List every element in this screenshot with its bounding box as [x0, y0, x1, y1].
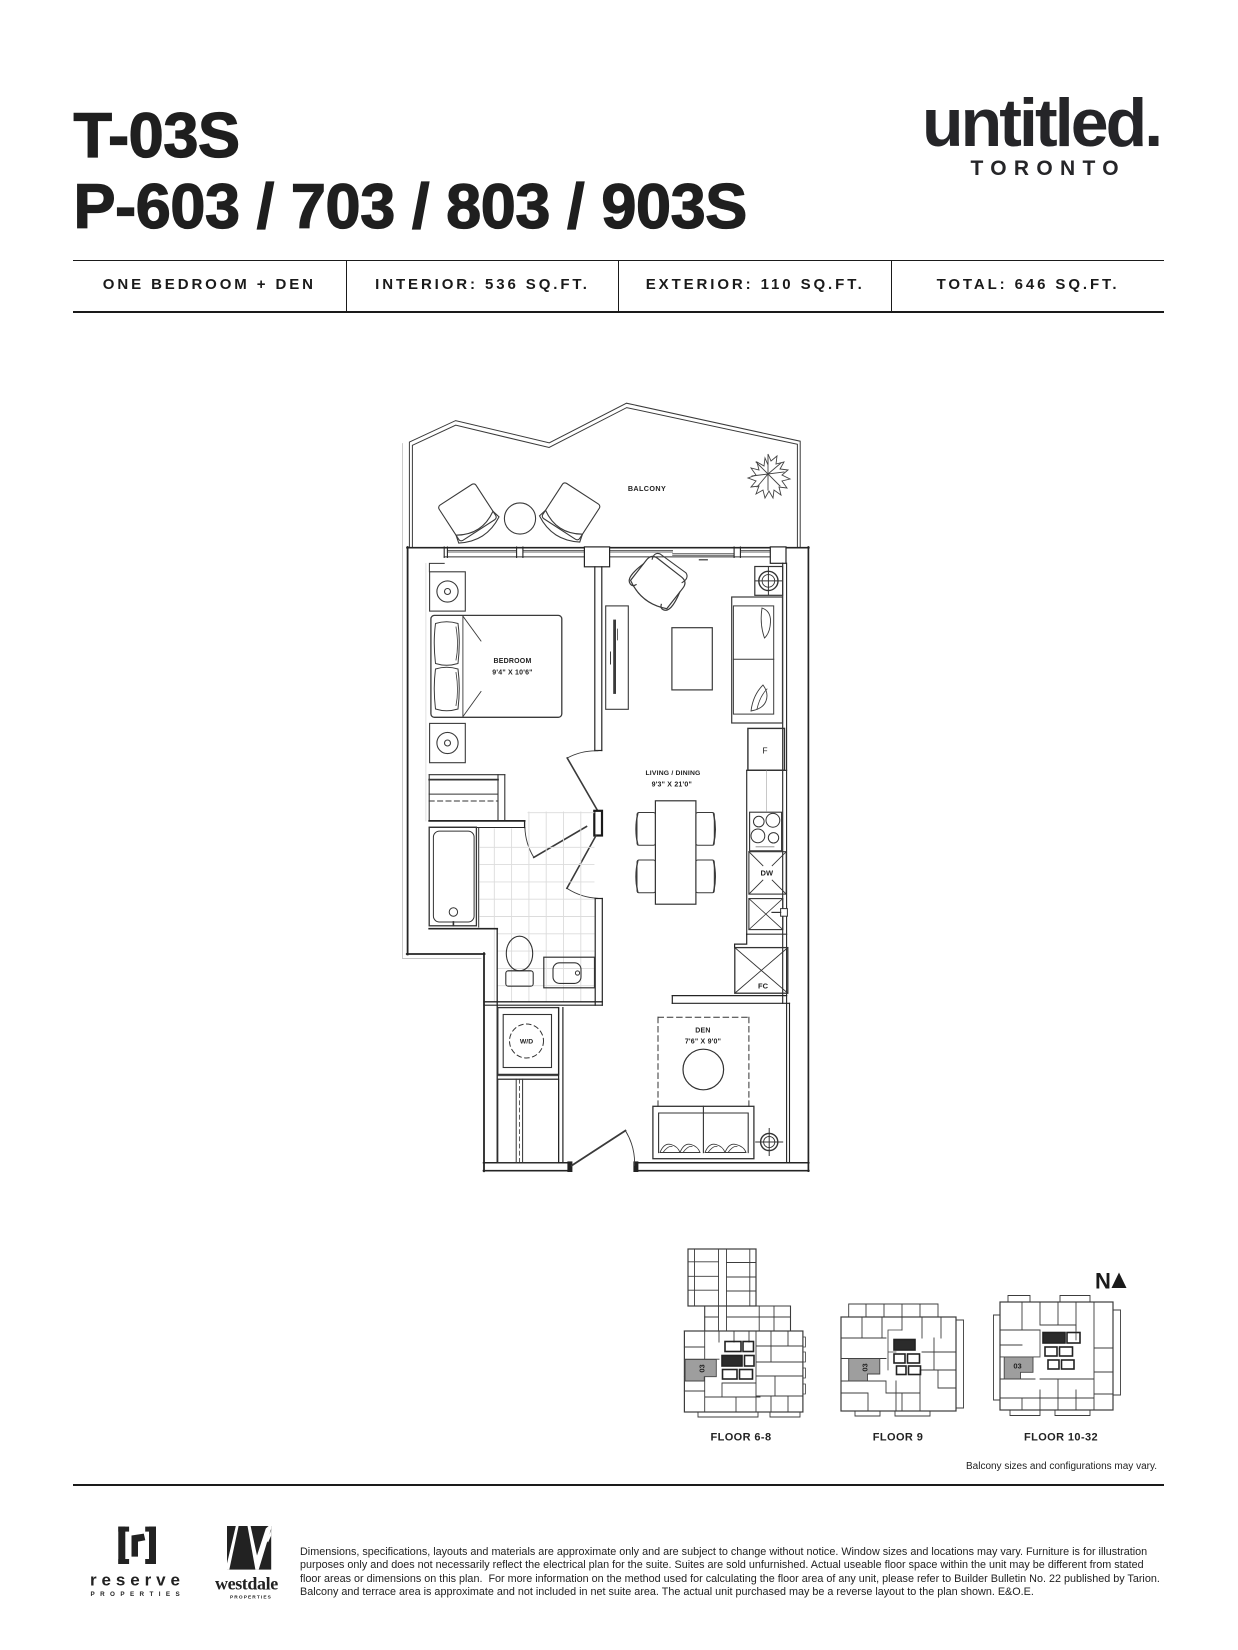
svg-text:westdale: westdale [215, 1574, 278, 1594]
svg-text:PROPERTIES: PROPERTIES [91, 1591, 186, 1598]
svg-text:LIVING / DINING: LIVING / DINING [645, 770, 700, 777]
svg-text:F: F [762, 746, 767, 756]
svg-text:9'3" X 21'0": 9'3" X 21'0" [652, 782, 692, 789]
svg-text:DW: DW [761, 869, 774, 878]
svg-text:DEN: DEN [695, 1028, 710, 1035]
svg-text:FLOOR 10-32: FLOOR 10-32 [1024, 1432, 1098, 1444]
svg-text:9'4" X 10'6": 9'4" X 10'6" [492, 670, 532, 677]
svg-text:BEDROOM: BEDROOM [494, 658, 532, 665]
svg-text:BALCONY: BALCONY [628, 484, 666, 493]
svg-text:7'6" X 9'0": 7'6" X 9'0" [685, 1039, 721, 1046]
svg-text:03: 03 [1013, 1362, 1021, 1371]
svg-text:PROPERTIES: PROPERTIES [230, 1594, 272, 1600]
svg-text:reserve: reserve [90, 1571, 185, 1590]
svg-text:03: 03 [861, 1363, 870, 1371]
svg-text:FLOOR 9: FLOOR 9 [873, 1432, 923, 1444]
svg-text:N: N [1095, 1269, 1111, 1294]
svg-text:W/D: W/D [520, 1039, 533, 1046]
svg-text:FC: FC [758, 982, 769, 991]
svg-text:03: 03 [698, 1364, 707, 1372]
svg-text:FLOOR 6-8: FLOOR 6-8 [710, 1432, 771, 1444]
svg-text:Balcony sizes and configuratio: Balcony sizes and configurations may var… [966, 1461, 1157, 1472]
